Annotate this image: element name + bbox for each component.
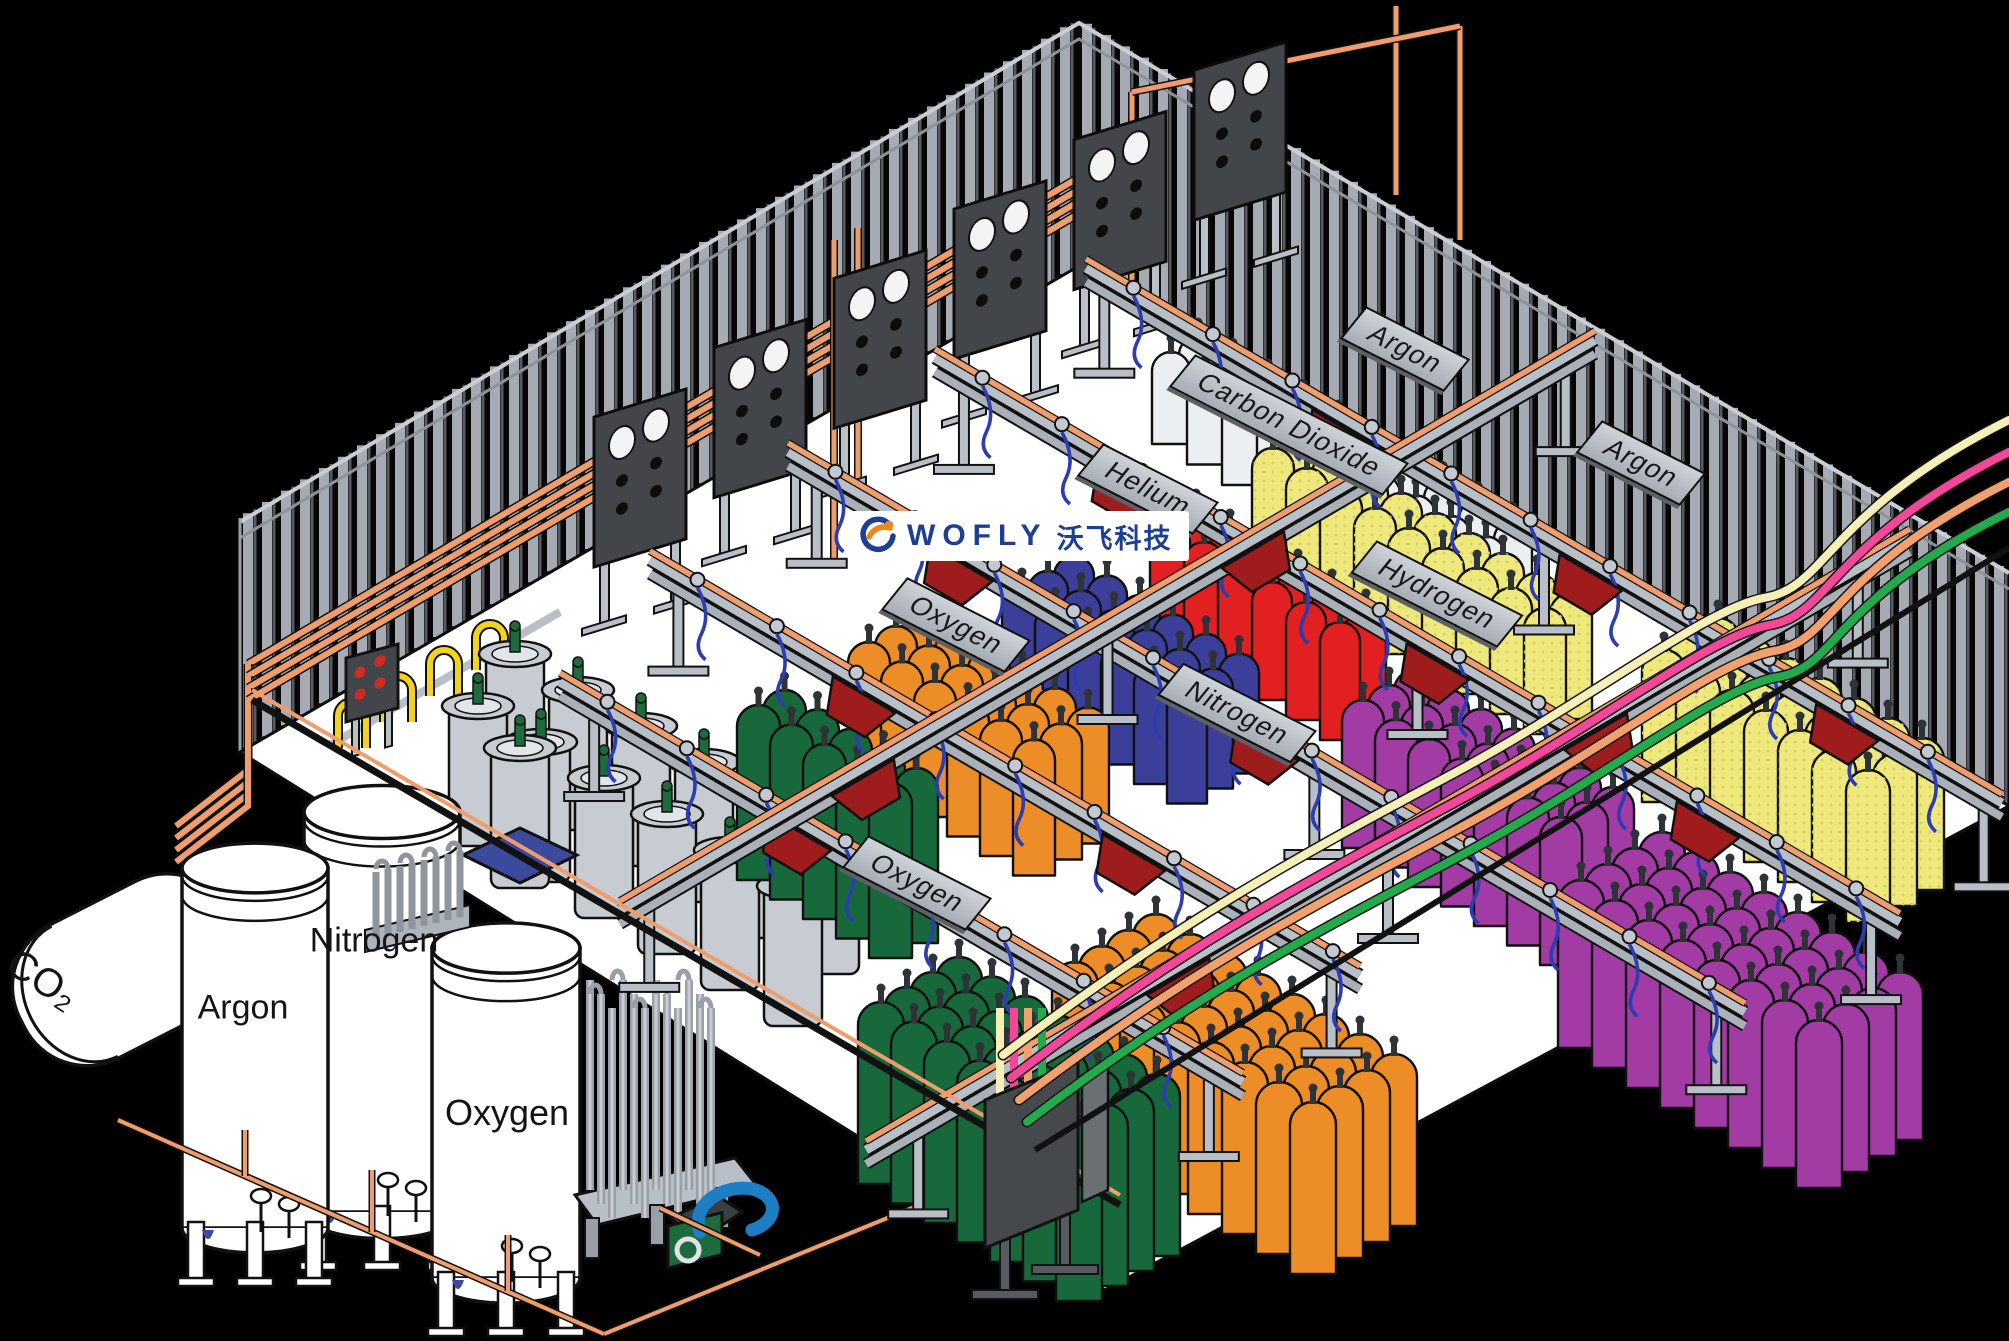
sign-argon-right: Argon [1576, 420, 1707, 506]
co2-tank-label: CO₂ [0, 941, 86, 1020]
sign-nitrogen: Nitrogen [1157, 663, 1317, 764]
sign-carbon-dioxide: Carbon Dioxide [1169, 354, 1409, 496]
brand-name-en: WOFLY [907, 519, 1048, 553]
sign-argon-top: Argon [1340, 306, 1471, 392]
wofly-logo: WOFLY 沃飞科技 [848, 511, 1189, 561]
scene-illustration: Argon Carbon Dioxide Helium Argon Hydrog… [0, 0, 2009, 1341]
wofly-swirl-icon [856, 515, 898, 557]
oxygen-tank-label: Oxygen [445, 1092, 569, 1134]
sign-hydrogen: Hydrogen [1350, 540, 1523, 648]
label-overlay: Argon Carbon Dioxide Helium Argon Hydrog… [0, 0, 2009, 1341]
nitrogen-tank-label: Nitrogen [310, 922, 439, 961]
swirl-orange-dot [885, 521, 893, 529]
argon-tank-label: Argon [198, 989, 289, 1028]
sign-oxygen-upper: Oxygen [881, 577, 1031, 673]
brand-name-cn: 沃飞科技 [1057, 517, 1173, 556]
sign-oxygen-lower: Oxygen [842, 835, 992, 931]
